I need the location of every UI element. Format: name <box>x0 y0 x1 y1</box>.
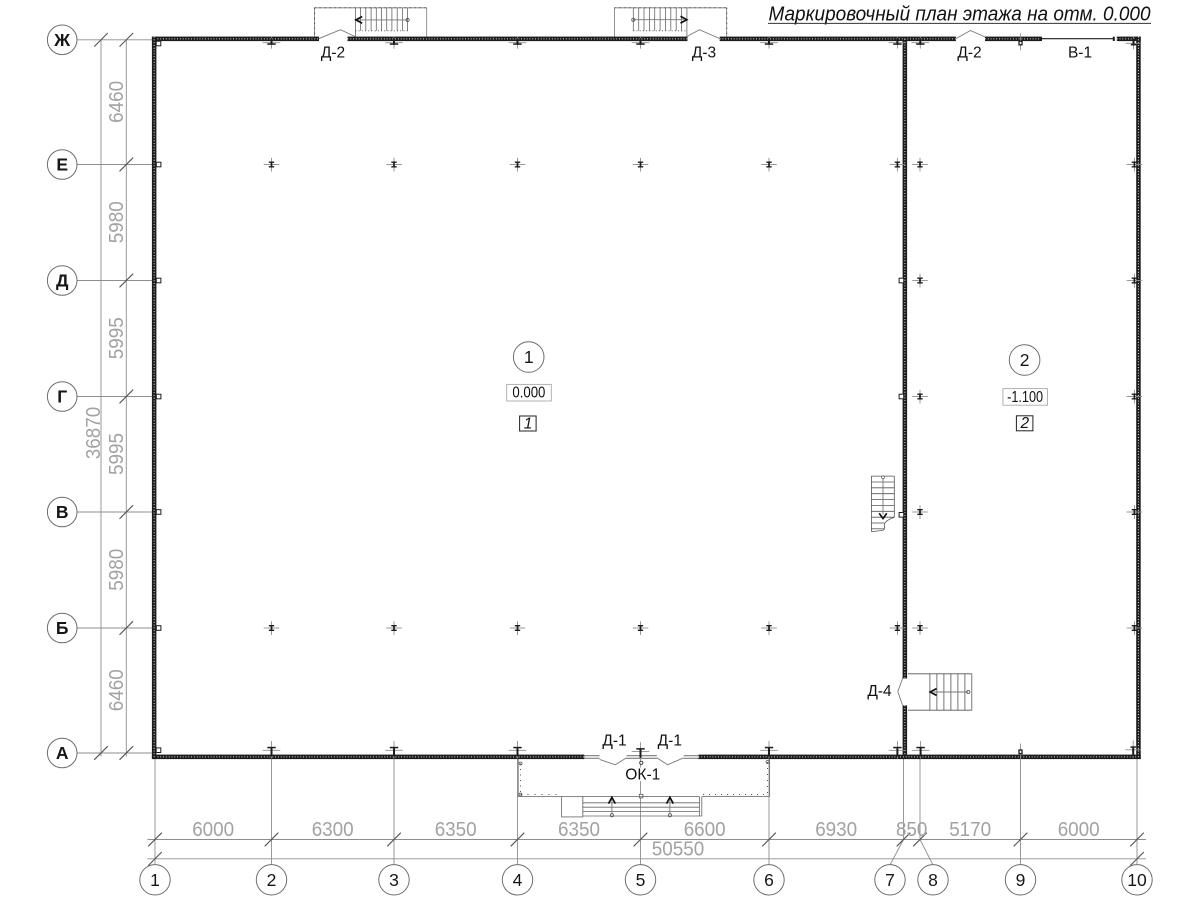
svg-text:6000: 6000 <box>192 818 234 841</box>
svg-text:2: 2 <box>267 870 277 890</box>
svg-text:А: А <box>56 743 69 763</box>
svg-text:0.000: 0.000 <box>512 385 545 402</box>
svg-text:Г: Г <box>57 387 67 407</box>
svg-text:7: 7 <box>885 870 895 890</box>
svg-text:5170: 5170 <box>949 818 991 841</box>
svg-text:Ж: Ж <box>53 30 70 50</box>
svg-text:8: 8 <box>928 870 938 890</box>
svg-text:3: 3 <box>389 870 399 890</box>
svg-text:50550: 50550 <box>652 838 705 861</box>
svg-text:36870: 36870 <box>82 407 105 460</box>
svg-text:Д-1: Д-1 <box>602 732 626 749</box>
svg-text:5980: 5980 <box>105 201 128 243</box>
svg-text:Е: Е <box>56 155 68 175</box>
svg-text:Д-2: Д-2 <box>321 44 345 61</box>
svg-text:6: 6 <box>764 870 774 890</box>
svg-text:В-1: В-1 <box>1068 44 1092 61</box>
svg-text:5980: 5980 <box>105 549 128 591</box>
svg-text:6350: 6350 <box>558 818 600 841</box>
svg-text:ОК-1: ОК-1 <box>625 767 660 784</box>
svg-text:5995: 5995 <box>105 433 128 475</box>
svg-text:850: 850 <box>896 818 928 841</box>
svg-text:5: 5 <box>636 870 646 890</box>
svg-text:6930: 6930 <box>815 818 857 841</box>
svg-text:6460: 6460 <box>105 669 128 711</box>
svg-text:6000: 6000 <box>1058 818 1100 841</box>
svg-text:2: 2 <box>1019 415 1029 432</box>
svg-text:Д-4: Д-4 <box>867 683 892 700</box>
svg-text:Б: Б <box>56 618 69 638</box>
svg-text:4: 4 <box>513 870 523 890</box>
svg-text:5995: 5995 <box>105 317 128 359</box>
svg-text:1: 1 <box>524 415 533 432</box>
svg-text:1: 1 <box>524 347 534 367</box>
svg-text:6350: 6350 <box>435 818 477 841</box>
svg-text:Д-1: Д-1 <box>658 732 682 749</box>
svg-text:Маркировочный план этажа на от: Маркировочный план этажа на отм. 0.000 <box>769 3 1151 25</box>
svg-text:10: 10 <box>1127 870 1147 890</box>
svg-text:2: 2 <box>1020 350 1030 370</box>
svg-text:В: В <box>56 502 69 522</box>
svg-text:1: 1 <box>150 870 160 890</box>
svg-text:Д: Д <box>56 271 69 291</box>
svg-text:-1.100: -1.100 <box>1007 389 1043 406</box>
svg-text:Д-2: Д-2 <box>957 44 981 61</box>
svg-text:6300: 6300 <box>312 818 354 841</box>
svg-text:Д-3: Д-3 <box>692 44 716 61</box>
svg-text:9: 9 <box>1016 870 1026 890</box>
svg-text:6460: 6460 <box>105 81 128 123</box>
